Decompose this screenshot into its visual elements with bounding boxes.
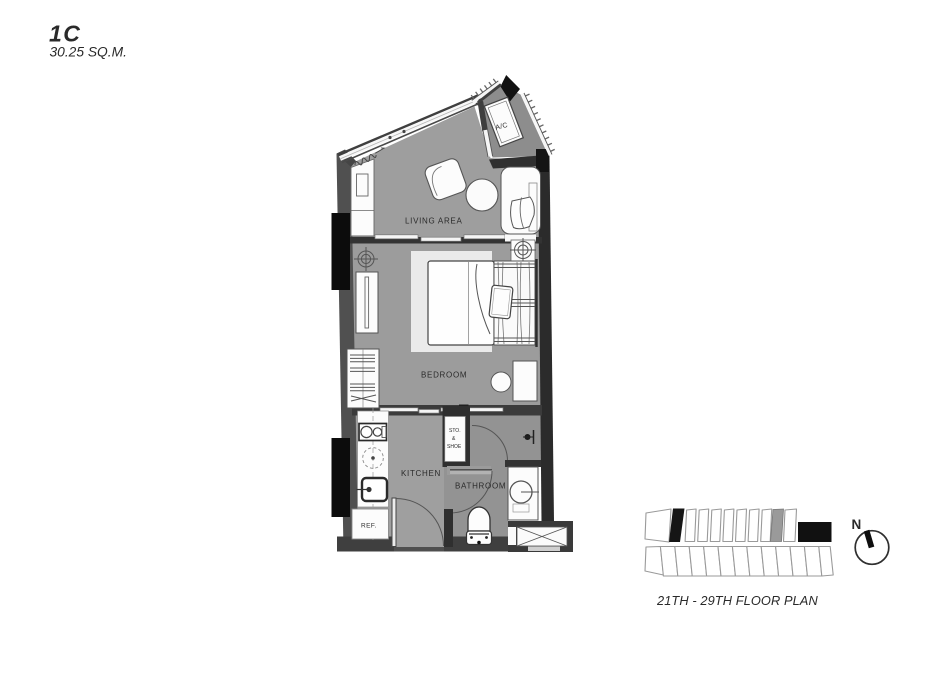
svg-text:KITCHEN: KITCHEN <box>401 469 441 478</box>
svg-text:SHOE: SHOE <box>447 444 462 450</box>
svg-text:30.25 SQ.M.: 30.25 SQ.M. <box>50 45 127 60</box>
svg-text:BEDROOM: BEDROOM <box>421 371 467 380</box>
svg-text:N: N <box>852 517 862 532</box>
svg-text:STO.: STO. <box>449 428 461 434</box>
svg-text:21TH - 29TH FLOOR PLAN: 21TH - 29TH FLOOR PLAN <box>656 593 818 608</box>
svg-text:1C: 1C <box>49 21 81 47</box>
svg-text:REF.: REF. <box>361 523 377 530</box>
svg-text:BATHROOM: BATHROOM <box>455 482 506 491</box>
svg-text:LIVING AREA: LIVING AREA <box>405 217 463 226</box>
